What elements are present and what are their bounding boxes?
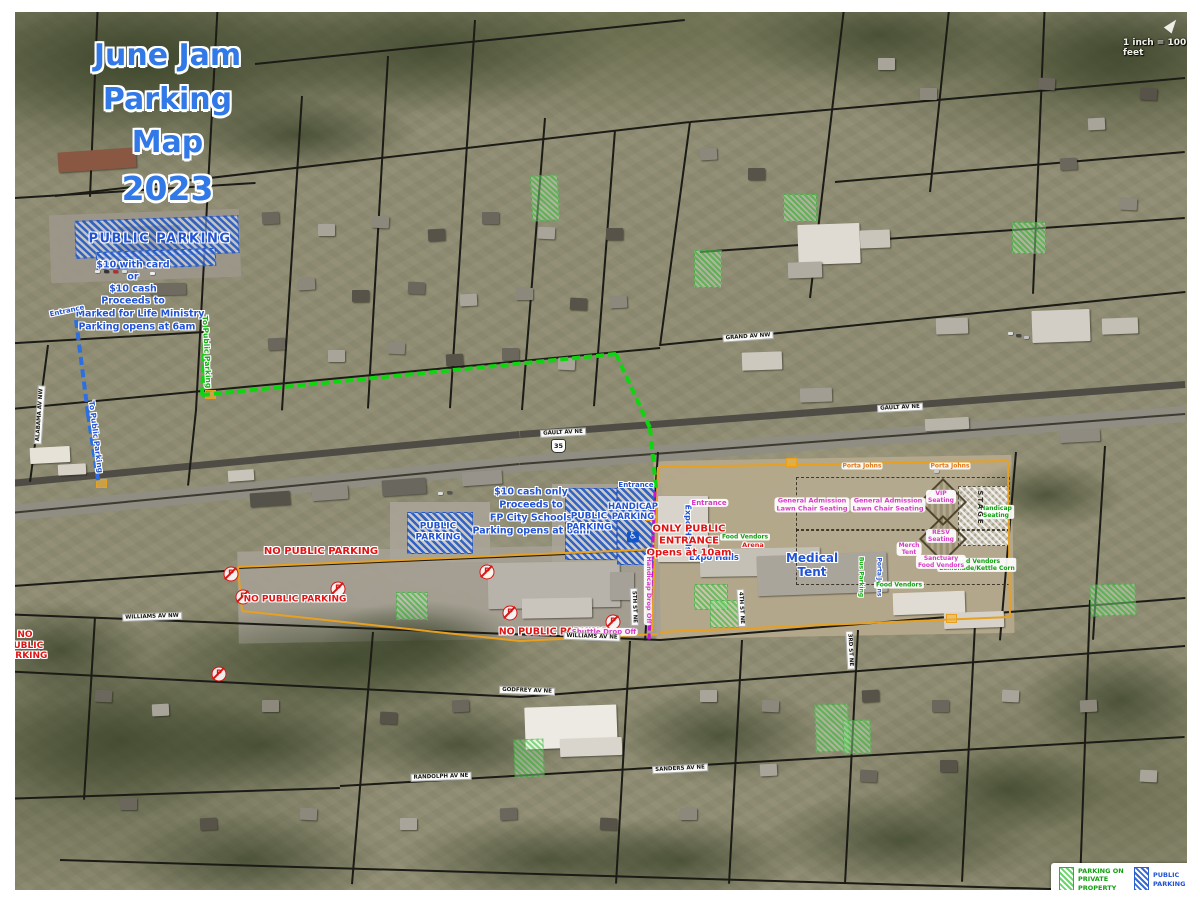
building bbox=[58, 463, 87, 475]
walking-route-green bbox=[202, 352, 616, 397]
label-entrance-northwest: Entrance bbox=[49, 303, 85, 318]
tree-cluster bbox=[610, 685, 830, 785]
building bbox=[680, 808, 697, 820]
building bbox=[408, 282, 426, 295]
private-parking-area bbox=[842, 720, 871, 755]
building bbox=[95, 690, 113, 703]
building bbox=[352, 290, 369, 302]
building bbox=[452, 700, 470, 713]
building bbox=[502, 348, 519, 360]
road bbox=[593, 130, 616, 406]
building bbox=[400, 818, 417, 830]
no-parking-icon: P bbox=[331, 582, 346, 597]
road bbox=[521, 118, 546, 410]
highway-shield-35: 35 bbox=[551, 439, 566, 453]
building bbox=[940, 760, 957, 772]
legend-box: PARKING ON PRIVATE PROPERTY PUBLIC PARKI… bbox=[1051, 863, 1187, 890]
building bbox=[742, 351, 783, 370]
label-ministry: Marked for Life Ministry bbox=[76, 308, 205, 319]
seating-area-outline bbox=[796, 477, 1010, 531]
building bbox=[152, 704, 170, 717]
car bbox=[122, 270, 127, 273]
no-parking-icon: P bbox=[236, 590, 251, 605]
building bbox=[1140, 770, 1158, 783]
car bbox=[438, 492, 443, 495]
private-parking-area bbox=[513, 738, 544, 777]
private-parking-area bbox=[694, 250, 722, 288]
private-parking-area bbox=[396, 592, 428, 620]
building bbox=[920, 88, 937, 100]
building bbox=[560, 737, 623, 757]
building bbox=[120, 798, 137, 810]
road bbox=[929, 12, 951, 192]
building bbox=[200, 818, 218, 831]
road bbox=[351, 632, 374, 884]
private-parking-area bbox=[1012, 222, 1046, 254]
walking-route-green bbox=[614, 353, 652, 429]
building bbox=[460, 294, 478, 307]
label-proceeds-north: Proceeds to bbox=[101, 295, 165, 306]
building bbox=[936, 317, 969, 334]
building bbox=[606, 228, 623, 240]
no-parking-icon: P bbox=[212, 667, 227, 682]
building bbox=[1140, 88, 1158, 101]
road bbox=[340, 736, 1185, 787]
public-parking-swatch bbox=[1134, 867, 1149, 890]
car bbox=[95, 270, 100, 273]
road bbox=[255, 19, 685, 65]
map-title: June Jam Parking Map 2023 bbox=[70, 34, 265, 212]
building bbox=[1002, 690, 1020, 703]
building bbox=[538, 227, 556, 240]
no-parking-icon: P bbox=[480, 565, 495, 580]
private-parking-area bbox=[783, 194, 817, 222]
building bbox=[388, 342, 406, 355]
legend-private-label: PARKING ON PRIVATE PROPERTY bbox=[1078, 867, 1130, 890]
road bbox=[15, 331, 205, 345]
road bbox=[835, 151, 1185, 183]
label-no-parking-3: NO PUBLIC PARKING bbox=[15, 630, 47, 662]
car bbox=[113, 270, 118, 273]
building bbox=[800, 387, 832, 402]
private-parking-area bbox=[1089, 583, 1136, 617]
building bbox=[788, 261, 823, 278]
building bbox=[462, 470, 503, 487]
gate-marker bbox=[96, 479, 107, 488]
building bbox=[328, 350, 345, 362]
building bbox=[318, 224, 335, 236]
private-parking-area bbox=[710, 600, 740, 628]
car bbox=[150, 272, 155, 275]
tree-cluster bbox=[240, 12, 620, 115]
building bbox=[446, 354, 464, 367]
label-opens-north: Parking opens at 6am bbox=[79, 321, 196, 332]
building bbox=[760, 764, 778, 777]
building bbox=[262, 700, 279, 712]
building bbox=[1038, 78, 1056, 91]
building bbox=[610, 572, 634, 600]
building bbox=[893, 591, 966, 615]
building bbox=[298, 278, 316, 291]
road bbox=[700, 217, 1185, 253]
road bbox=[60, 859, 1185, 890]
building bbox=[300, 808, 318, 821]
building bbox=[610, 296, 628, 309]
scale-note: 1 inch = 100 feet bbox=[1123, 38, 1187, 58]
private-parking-area bbox=[530, 174, 560, 221]
private-parking-swatch bbox=[1059, 867, 1074, 890]
tree-cluster bbox=[760, 790, 1040, 890]
building bbox=[522, 597, 592, 618]
building bbox=[860, 770, 878, 783]
street-3rd: 3RD ST NE bbox=[845, 631, 855, 670]
building bbox=[428, 229, 446, 242]
building bbox=[1060, 158, 1078, 171]
building bbox=[500, 808, 518, 821]
road bbox=[187, 410, 197, 486]
tree-cluster bbox=[720, 12, 1040, 90]
building bbox=[797, 223, 860, 265]
no-parking-icon: P bbox=[503, 606, 518, 621]
building bbox=[700, 690, 717, 702]
shuttle-route-blue bbox=[86, 414, 100, 481]
building bbox=[381, 477, 426, 496]
building bbox=[1120, 198, 1138, 211]
building bbox=[482, 212, 499, 224]
building bbox=[570, 298, 588, 311]
aerial-map: PPPPPPPPUBLIC PARKING$10 with cardor$10 … bbox=[15, 12, 1187, 890]
public-parking-area bbox=[617, 487, 655, 565]
car bbox=[131, 270, 136, 273]
building bbox=[1031, 309, 1090, 343]
building bbox=[372, 216, 390, 229]
gate-marker bbox=[786, 458, 797, 467]
building bbox=[30, 446, 71, 464]
building bbox=[312, 485, 349, 501]
building bbox=[860, 229, 891, 248]
building bbox=[228, 469, 255, 482]
legend-row: PARKING ON PRIVATE PROPERTY PUBLIC PARKI… bbox=[1059, 867, 1187, 890]
public-parking-area bbox=[407, 512, 473, 554]
gate-marker bbox=[946, 614, 957, 623]
tree-cluster bbox=[910, 745, 1110, 835]
map-title-line2: Parking Map bbox=[70, 78, 265, 165]
car bbox=[1016, 334, 1021, 337]
legend-public-label: PUBLIC PARKING bbox=[1153, 871, 1187, 887]
tree-cluster bbox=[110, 810, 390, 890]
building bbox=[925, 417, 970, 431]
building bbox=[262, 212, 280, 225]
road bbox=[659, 122, 691, 346]
building bbox=[1060, 429, 1101, 443]
no-parking-icon: P bbox=[606, 615, 621, 630]
building bbox=[748, 168, 765, 180]
building bbox=[1102, 317, 1139, 334]
car bbox=[1008, 332, 1013, 335]
seating-area-outline bbox=[796, 529, 1010, 585]
building bbox=[862, 690, 880, 703]
map-title-line3: 2023 bbox=[70, 165, 265, 213]
tree-cluster bbox=[400, 815, 700, 890]
building bbox=[762, 700, 780, 713]
building bbox=[268, 338, 286, 351]
building bbox=[516, 288, 533, 300]
building bbox=[600, 818, 618, 831]
building bbox=[150, 283, 186, 296]
car bbox=[934, 470, 939, 473]
road bbox=[281, 96, 303, 410]
car bbox=[447, 491, 452, 494]
parking-map-page: PPPPPPPPUBLIC PARKING$10 with cardor$10 … bbox=[0, 0, 1200, 900]
building bbox=[700, 148, 718, 161]
building bbox=[380, 712, 398, 725]
road bbox=[15, 569, 238, 588]
building bbox=[878, 58, 895, 70]
road bbox=[449, 20, 476, 408]
map-title-line1: June Jam bbox=[70, 34, 265, 78]
no-parking-icon: P bbox=[224, 567, 239, 582]
shuttle-route-blue bbox=[74, 320, 90, 414]
building bbox=[932, 700, 949, 712]
building bbox=[1088, 118, 1106, 131]
road bbox=[83, 617, 96, 800]
car bbox=[1024, 336, 1029, 339]
car bbox=[104, 270, 109, 273]
building bbox=[250, 491, 291, 508]
road bbox=[15, 787, 340, 800]
road bbox=[367, 56, 389, 408]
road bbox=[615, 641, 631, 884]
building bbox=[1080, 700, 1098, 713]
